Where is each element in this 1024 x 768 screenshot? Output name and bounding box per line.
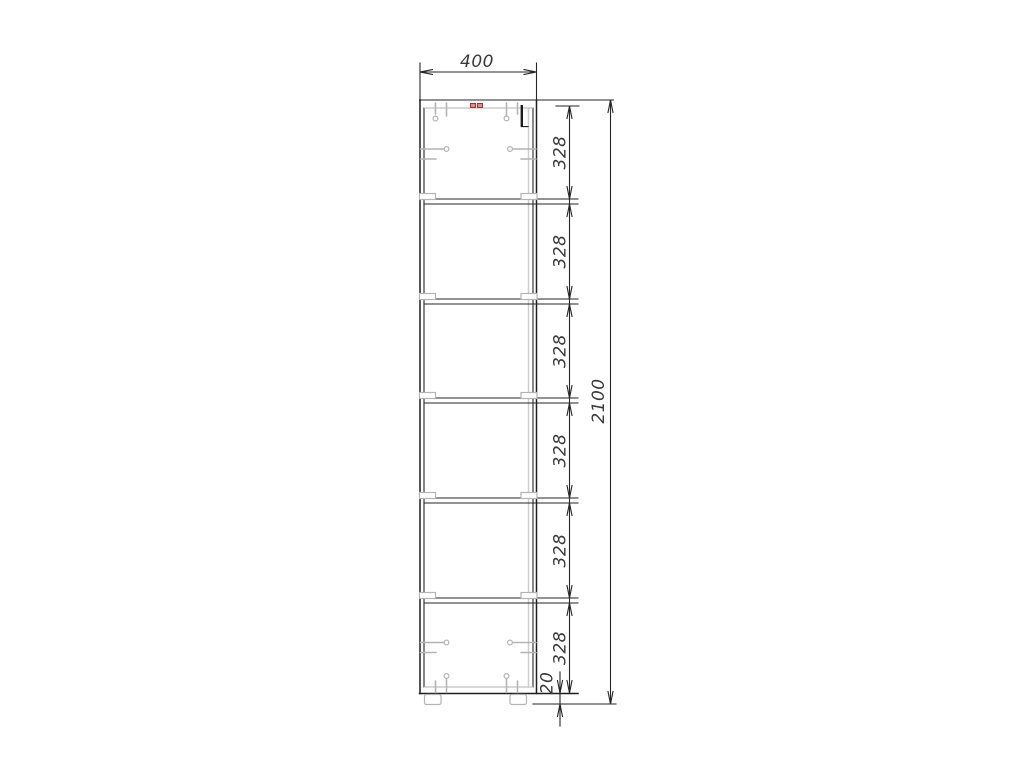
dim-label-base: 20 bbox=[538, 672, 558, 695]
shelf-clip-right bbox=[521, 393, 537, 399]
dim-label-opening-4: 328 bbox=[551, 434, 571, 468]
shelf-clip-left bbox=[420, 194, 436, 200]
dim-label-opening-2: 328 bbox=[551, 235, 571, 269]
foot-left bbox=[425, 695, 442, 705]
cam-fitting-icons-bottom-section bbox=[421, 640, 537, 652]
dimension-overall-height: 2100 bbox=[589, 100, 613, 704]
shelf-clip-right bbox=[521, 593, 537, 599]
red-connector-icon bbox=[471, 104, 483, 108]
shelf-clip-right bbox=[521, 493, 537, 499]
shelf-clip-left bbox=[420, 493, 436, 499]
dimension-chain-openings: 328 328 328 328 328 328 bbox=[551, 106, 580, 693]
drawing-canvas: 400 328 328 328 328 bbox=[0, 0, 1024, 768]
dim-label-width: 400 bbox=[460, 52, 494, 72]
dim-label-opening-1: 328 bbox=[551, 136, 571, 170]
shelf-clip-left bbox=[420, 294, 436, 300]
dimension-width: 400 bbox=[420, 52, 537, 99]
dim-label-overall-height: 2100 bbox=[589, 378, 609, 423]
dim-label-opening-6: 328 bbox=[551, 631, 571, 665]
shelf-clip-right bbox=[521, 294, 537, 300]
hardware-fittings bbox=[421, 103, 537, 705]
cabinet-carcass bbox=[420, 100, 614, 694]
bottom-dowel-icons bbox=[436, 674, 518, 693]
dimensions: 400 328 328 328 328 bbox=[420, 52, 616, 726]
dim-label-opening-5: 328 bbox=[551, 534, 571, 568]
cabinet-technical-drawing: 400 328 328 328 328 bbox=[0, 0, 1024, 768]
foot-right bbox=[510, 695, 527, 705]
dim-label-opening-3: 328 bbox=[551, 334, 571, 368]
shelf-clip-left bbox=[420, 393, 436, 399]
shelf-clip-left bbox=[420, 593, 436, 599]
cam-fitting-icons-top-section bbox=[421, 147, 537, 159]
dimension-base: 20 bbox=[533, 672, 616, 726]
shelf-clip-right bbox=[521, 194, 537, 200]
